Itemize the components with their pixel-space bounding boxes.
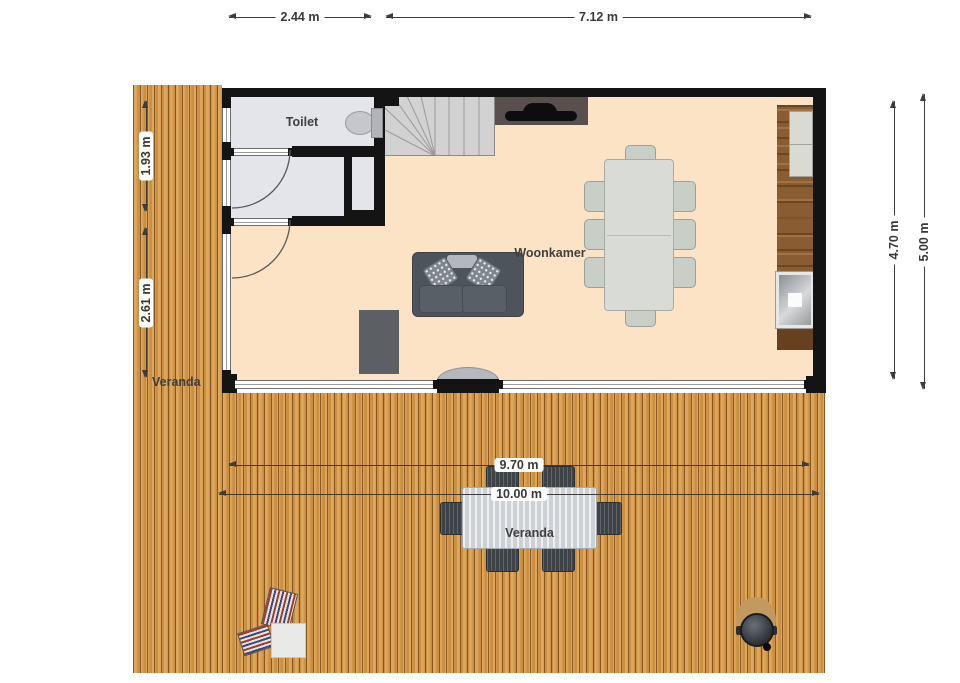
kitchen-appliance <box>789 111 813 177</box>
wall-patio-door <box>437 379 499 393</box>
dimension-label: 4.70 m <box>887 216 901 265</box>
dimension-deck-outer: 10.00 m <box>218 487 820 501</box>
dimension-left-lower: 2.61 m <box>139 227 153 378</box>
dimension-label: 1.93 m <box>139 132 153 181</box>
sofa-seat <box>462 285 507 313</box>
dimension-label: 7.12 m <box>574 10 623 24</box>
wall-stair-stub <box>385 96 399 106</box>
dimension-label: 5.00 m <box>917 217 931 266</box>
veranda-chair <box>595 502 622 535</box>
wall-corner-bottom-right <box>806 376 826 393</box>
tv-base <box>505 111 577 121</box>
dimension-right-outer: 5.00 m <box>917 93 931 390</box>
staircase <box>385 96 495 156</box>
dimension-label: 2.44 m <box>276 10 325 24</box>
window-living-bottom-right <box>499 380 808 389</box>
sink-basin <box>779 275 811 325</box>
toilet-label: Toilet <box>230 115 374 129</box>
rug <box>359 310 399 374</box>
table-seam <box>607 235 671 236</box>
dimension-top-small: 2.44 m <box>228 10 372 24</box>
dimension-label: 10.00 m <box>491 487 547 501</box>
veranda-side-label: Veranda <box>152 375 201 389</box>
veranda-chair <box>542 547 575 572</box>
veranda-table-label: Veranda <box>462 526 597 540</box>
living-room-label: Woonkamer <box>480 246 620 260</box>
dimension-label: 9.70 m <box>495 458 544 472</box>
grill <box>740 613 774 647</box>
counter-end-block <box>777 330 813 350</box>
dimension-deck-inner: 9.70 m <box>228 458 810 472</box>
dining-table <box>604 159 674 311</box>
dimension-left-upper: 1.93 m <box>139 100 153 212</box>
sofa-seat <box>419 285 464 313</box>
window-living-bottom-left <box>231 380 437 389</box>
dimension-top-large: 7.12 m <box>385 10 812 24</box>
wall-right <box>813 88 826 393</box>
veranda-chair <box>486 547 519 572</box>
kitchen-sink <box>775 271 815 329</box>
grill-knob <box>763 643 771 651</box>
appliance-divider <box>790 144 812 145</box>
deck-side-table <box>271 623 306 658</box>
dimension-right-inner: 4.70 m <box>887 100 901 380</box>
dimension-label: 2.61 m <box>139 278 153 327</box>
floor-plan: Veranda Toilet Woonkamer Veranda 2.44 m … <box>0 0 960 683</box>
sofa <box>412 252 524 317</box>
sink-drain <box>788 293 802 307</box>
